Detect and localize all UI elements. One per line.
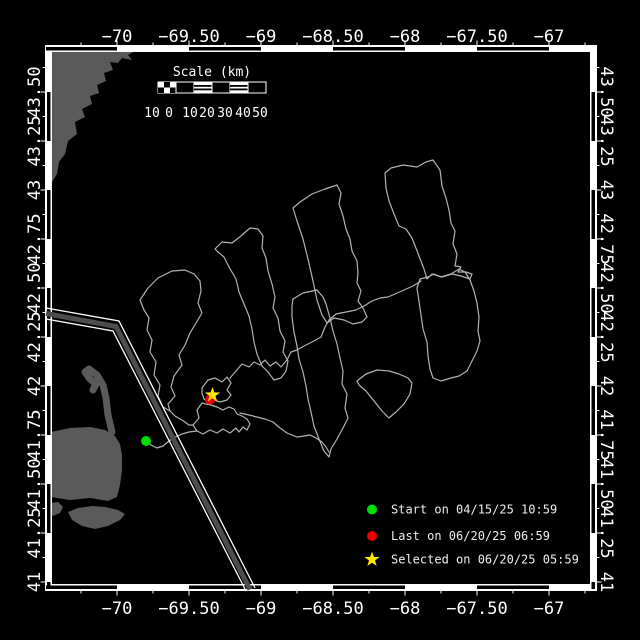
frame-band-segment (47, 92, 51, 141)
track-line (215, 228, 288, 380)
lon-tick-label-top: −68 (390, 27, 421, 47)
legend-last-label: Last on 06/20/25 06:59 (391, 529, 550, 543)
scale-bar-tick-label: 20 (199, 106, 215, 121)
scale-bar-stripe (230, 85, 248, 87)
frame-band-segment (592, 190, 596, 239)
frame-band-segment (477, 586, 549, 590)
start-position-marker (141, 436, 151, 446)
lat-tick-label-right: 42 (596, 376, 616, 396)
lat-tick-label-right: 42.75 (596, 213, 616, 264)
lat-tick-label-right: 43 (596, 180, 616, 200)
scale-bar-segment (194, 82, 212, 93)
lon-tick-label-bottom: −67.50 (446, 599, 507, 619)
lon-tick-label-bottom: −69.50 (158, 599, 219, 619)
lon-tick-label-bottom: −67 (534, 599, 565, 619)
frame-band-segment (592, 484, 596, 533)
frame-band-segment (47, 386, 51, 435)
scale-bar-checker-cell (158, 88, 164, 94)
legend-selected-label: Selected on 06/20/25 05:59 (391, 553, 579, 567)
lat-tick-label-right: 43.25 (596, 115, 616, 166)
track-line (293, 185, 367, 324)
frame-band-segment (47, 582, 51, 589)
scale-bar-tick-label: 0 (165, 106, 173, 121)
lat-tick-label-left: 43.25 (25, 115, 45, 166)
track-line (385, 160, 472, 279)
frame-band-segment (46, 47, 117, 51)
track-line (417, 269, 480, 381)
scale-bar-tick-label: 50 (252, 106, 268, 121)
scale-bar-segment (248, 82, 266, 93)
frame-band-segment (592, 92, 596, 141)
lat-tick-label-left: 41.25 (25, 507, 45, 558)
legend-start-icon (367, 505, 377, 515)
lon-tick-label-top: −68.50 (302, 27, 363, 47)
lat-tick-label-left: 42.50 (25, 262, 45, 313)
scale-bar-tick-label: 30 (217, 106, 233, 121)
scale-bar-stripe (194, 89, 212, 91)
scale-bar-tick-label: 10 (144, 106, 160, 121)
track-line (193, 403, 250, 434)
lon-tick-label-top: −67 (534, 27, 565, 47)
frame-band-segment (592, 386, 596, 435)
lat-tick-label-right: 41.75 (596, 409, 616, 460)
lat-tick-label-right: 41 (596, 572, 616, 592)
scale-bar-tick-label: 40 (235, 106, 251, 121)
lat-tick-label-right: 42.50 (596, 262, 616, 313)
frame-band-segment (333, 47, 405, 51)
legend: Start on 04/15/25 10:59 Last on 06/20/25… (364, 503, 578, 567)
scale-bar-segment (212, 82, 230, 93)
lon-tick-label-bottom: −68 (390, 599, 421, 619)
lat-tick-label-left: 43 (25, 180, 45, 200)
land-polygon (68, 506, 125, 529)
scale-bar-stripe (194, 85, 212, 87)
frame-band-segment (333, 586, 405, 590)
track-line (230, 281, 421, 378)
lat-tick-label-left: 43.50 (25, 66, 45, 117)
frame-band-segment (47, 484, 51, 533)
frame-band-segment (477, 47, 549, 51)
lon-tick-label-top: −69.50 (158, 27, 219, 47)
scale-bar-stripe (230, 89, 248, 91)
frame-band-segment (592, 288, 596, 337)
legend-selected-star-icon (364, 552, 379, 567)
scale-bar: 1001020304050 (144, 82, 268, 121)
cape-cod-arm (85, 369, 112, 432)
scalebar-title: Scale (km) (173, 65, 251, 80)
land-polygon (51, 427, 122, 501)
lat-tick-label-right: 43.50 (596, 66, 616, 117)
lat-tick-label-right: 41.25 (596, 507, 616, 558)
frame-band-segment (189, 47, 261, 51)
lon-tick-label-bottom: −68.50 (302, 599, 363, 619)
track-line (240, 413, 329, 452)
frame-band-segment (592, 582, 596, 589)
lat-tick-label-right: 41.50 (596, 458, 616, 509)
lat-tick-label-left: 42.75 (25, 213, 45, 264)
lon-tick-label-top: −69 (246, 27, 277, 47)
frame-band-segment (47, 190, 51, 239)
land-polygon (51, 502, 63, 516)
track-line (292, 290, 348, 457)
lat-tick-label-left: 42 (25, 376, 45, 396)
frame-band-segment (46, 586, 117, 590)
lon-tick-label-bottom: −70 (102, 599, 133, 619)
land-polygon (51, 51, 135, 190)
scale-bar-tick-label: 10 (182, 106, 198, 121)
lon-tick-label-top: −70 (102, 27, 133, 47)
scale-bar-checker-cell (170, 88, 176, 94)
lat-tick-label-left: 41.75 (25, 409, 45, 460)
scale-bar-segment (230, 82, 248, 93)
lon-tick-label-bottom: −69 (246, 599, 277, 619)
track-layer (140, 160, 480, 457)
land-layer (51, 51, 135, 529)
lon-tick-label-top: −67.50 (446, 27, 507, 47)
lat-tick-label-right: 42.25 (596, 311, 616, 362)
scale-bar-segment (176, 82, 194, 93)
lat-tick-label-left: 42.25 (25, 311, 45, 362)
track-line (170, 411, 193, 425)
track-line (357, 370, 412, 418)
track-map[interactable]: −70−70−69.50−69.50−69−69−68.50−68.50−68−… (0, 0, 640, 640)
lat-tick-label-left: 41 (25, 572, 45, 592)
lat-tick-label-left: 41.50 (25, 458, 45, 509)
scale-bar-checker-cell (164, 82, 170, 88)
legend-last-icon (367, 531, 377, 541)
legend-start-label: Start on 04/15/25 10:59 (391, 503, 557, 517)
